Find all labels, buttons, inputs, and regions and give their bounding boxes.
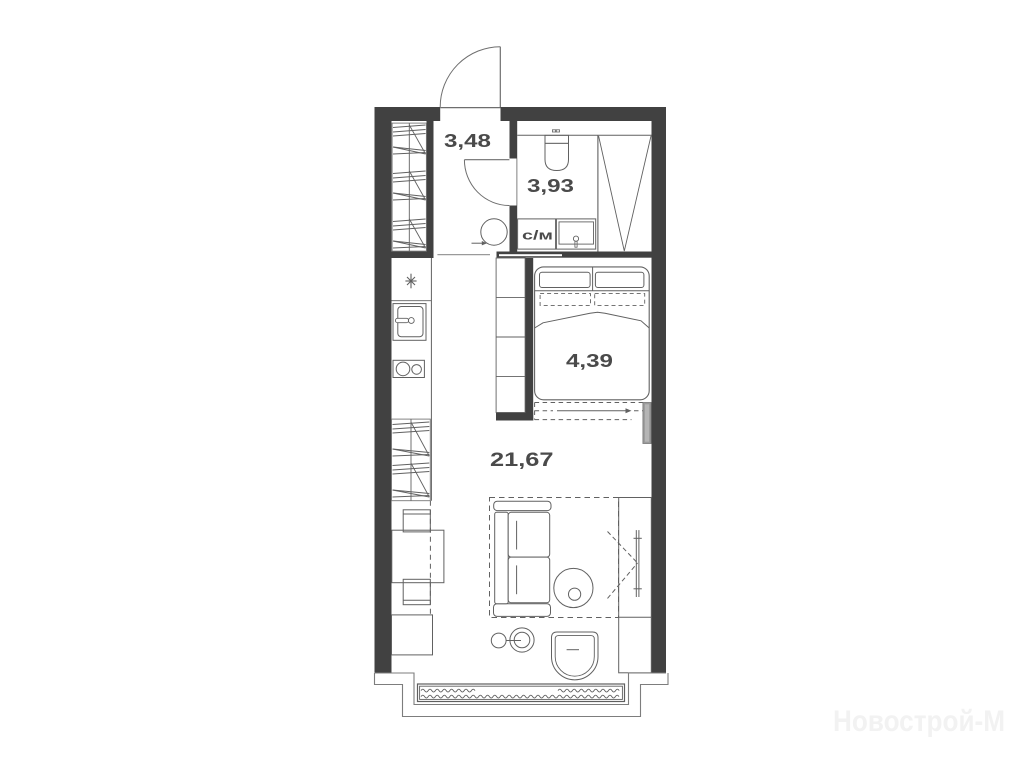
svg-text:Новострой-М: Новострой-М [833,705,1005,738]
svg-text:с/м: с/м [522,228,553,243]
svg-text:4,39: 4,39 [566,351,613,371]
svg-text:21,67: 21,67 [490,449,554,471]
svg-text:3,93: 3,93 [527,176,574,196]
svg-text:3,48: 3,48 [444,131,491,151]
